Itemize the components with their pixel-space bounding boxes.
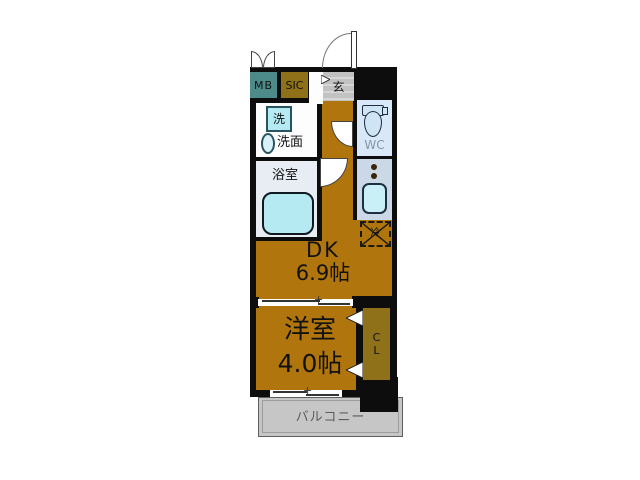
closet-door-triangle-icon <box>346 362 363 378</box>
bedroom-size-label: 4.0帖 <box>262 351 358 376</box>
stove-burner-icon <box>371 173 377 179</box>
entrance-step-marker-icon <box>321 75 330 84</box>
washbasin-icon <box>261 133 275 154</box>
structure-block <box>360 377 398 412</box>
bathtub-icon <box>262 192 314 235</box>
closet-label-top: C <box>373 331 381 344</box>
meter-box: MB <box>250 72 277 98</box>
front-door-leaf-icon <box>351 31 357 69</box>
closet-door-triangle-icon <box>346 310 363 326</box>
toilet-handle-icon <box>382 107 388 115</box>
floor-plan: バルコニー MB SIC 玄 洗 洗面 浴室 WC 冷 DK 6.9帖 <box>0 0 640 480</box>
stove-burner-icon <box>371 164 377 170</box>
toilet-label: WC <box>357 139 392 151</box>
closet-label-bottom: L <box>373 344 379 357</box>
washroom-label: 洗面 <box>277 136 303 149</box>
bedroom-label: 洋室 <box>262 317 358 343</box>
meter-box-door-right-icon <box>263 51 275 68</box>
sliding-door-icon: + <box>258 299 353 306</box>
wall-corridor-right <box>353 100 357 220</box>
bathroom-label: 浴室 <box>272 169 298 182</box>
shoe-closet: SIC <box>281 72 308 98</box>
dk-size-label: 6.9帖 <box>277 263 369 284</box>
closet: C L <box>363 308 390 380</box>
kitchen-sink-icon <box>362 183 387 214</box>
balcony-window-icon: + <box>270 390 342 397</box>
washing-machine-icon: 洗 <box>266 106 292 132</box>
wall-dk-closet <box>352 296 392 308</box>
meter-box-door-left-icon <box>251 51 263 68</box>
dk-label: DK <box>277 240 369 261</box>
front-door-swing-icon <box>322 33 351 68</box>
fridge-label: 冷 <box>371 229 381 239</box>
